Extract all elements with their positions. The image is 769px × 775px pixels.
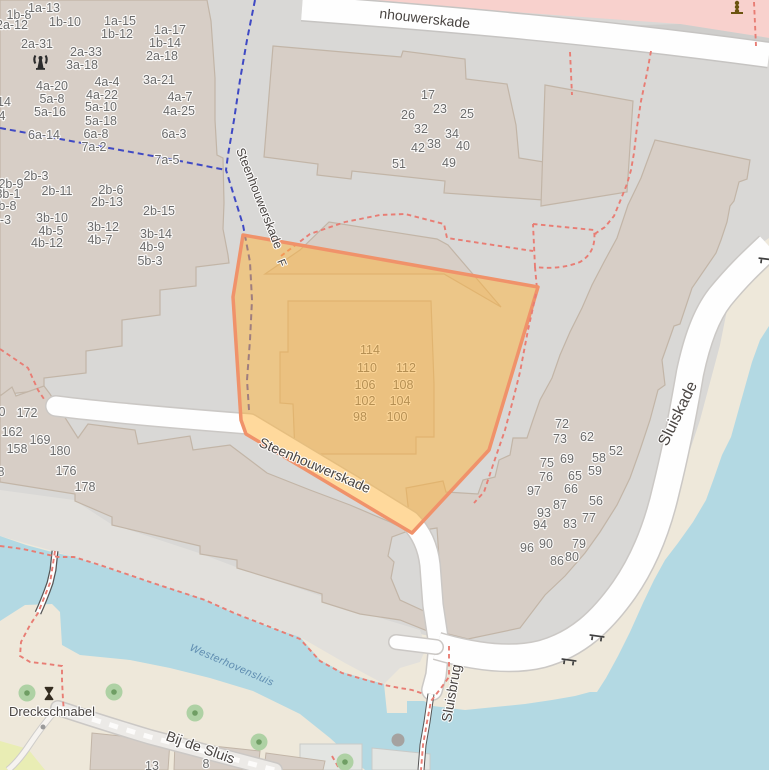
svg-text:3a-21: 3a-21 (143, 73, 175, 87)
svg-text:5b-3: 5b-3 (137, 254, 162, 268)
svg-text:77: 77 (582, 511, 596, 525)
svg-text:80: 80 (565, 550, 579, 564)
svg-text:1a-13: 1a-13 (28, 1, 60, 15)
svg-text:8: 8 (203, 757, 210, 770)
svg-text:14: 14 (0, 95, 11, 109)
svg-text:176: 176 (56, 464, 77, 478)
svg-text:3b-12: 3b-12 (87, 220, 119, 234)
svg-text:25: 25 (460, 107, 474, 121)
svg-text:6a-3: 6a-3 (161, 127, 186, 141)
svg-text:1b-14: 1b-14 (149, 36, 181, 50)
svg-text:94: 94 (533, 518, 547, 532)
svg-text:7a-5: 7a-5 (154, 153, 179, 167)
svg-text:86: 86 (550, 554, 564, 568)
svg-text:2a-31: 2a-31 (21, 37, 53, 51)
svg-text:2b-13: 2b-13 (91, 195, 123, 209)
svg-text:3b-8: 3b-8 (0, 199, 17, 213)
svg-text:38: 38 (427, 137, 441, 151)
svg-text:b-3: b-3 (0, 213, 11, 227)
svg-text:26: 26 (401, 108, 415, 122)
svg-text:172: 172 (17, 406, 38, 420)
svg-text:1b-10: 1b-10 (49, 15, 81, 29)
svg-text:158: 158 (7, 442, 28, 456)
svg-text:1b-12: 1b-12 (101, 27, 133, 41)
svg-text:2b-15: 2b-15 (143, 204, 175, 218)
svg-text:1a-15: 1a-15 (104, 14, 136, 28)
svg-text:59: 59 (588, 464, 602, 478)
svg-text:0: 0 (0, 405, 6, 419)
svg-text:62: 62 (580, 430, 594, 444)
svg-text:4a-7: 4a-7 (167, 90, 192, 104)
svg-text:52: 52 (609, 444, 623, 458)
svg-text:5a-10: 5a-10 (85, 100, 117, 114)
svg-text:4a-25: 4a-25 (163, 104, 195, 118)
svg-text:17: 17 (421, 88, 435, 102)
svg-text:5a-16: 5a-16 (34, 105, 66, 119)
svg-text:2a-18: 2a-18 (146, 49, 178, 63)
svg-text:7a-2: 7a-2 (81, 140, 106, 154)
svg-text:13: 13 (145, 759, 159, 770)
svg-text:72: 72 (555, 417, 569, 431)
svg-text:83: 83 (563, 517, 577, 531)
svg-text:2b-3: 2b-3 (23, 169, 48, 183)
svg-text:66: 66 (564, 482, 578, 496)
svg-text:6a-8: 6a-8 (83, 127, 108, 141)
svg-text:4a-20: 4a-20 (36, 79, 68, 93)
svg-text:180: 180 (50, 444, 71, 458)
svg-text:51: 51 (392, 157, 406, 171)
svg-text:4: 4 (0, 109, 6, 123)
svg-text:40: 40 (456, 139, 470, 153)
svg-text:162: 162 (2, 425, 23, 439)
svg-text:56: 56 (589, 494, 603, 508)
svg-text:76: 76 (539, 470, 553, 484)
svg-text:6a-14: 6a-14 (28, 128, 60, 142)
svg-text:79: 79 (572, 537, 586, 551)
svg-text:69: 69 (560, 452, 574, 466)
svg-text:90: 90 (539, 537, 553, 551)
svg-text:5a-18: 5a-18 (85, 114, 117, 128)
svg-text:8: 8 (0, 465, 5, 479)
svg-text:2a-33: 2a-33 (70, 45, 102, 59)
svg-text:5a-8: 5a-8 (39, 92, 64, 106)
svg-text:73: 73 (553, 432, 567, 446)
svg-text:1a-17: 1a-17 (154, 23, 186, 37)
svg-text:97: 97 (527, 484, 541, 498)
svg-text:87: 87 (553, 498, 567, 512)
svg-text:3a-18: 3a-18 (66, 58, 98, 72)
svg-text:42: 42 (411, 141, 425, 155)
svg-text:4b-12: 4b-12 (31, 236, 63, 250)
svg-text:23: 23 (433, 102, 447, 116)
svg-text:2b-11: 2b-11 (41, 184, 72, 198)
svg-text:4a-4: 4a-4 (94, 75, 119, 89)
svg-text:178: 178 (75, 480, 96, 494)
svg-text:65: 65 (568, 469, 582, 483)
svg-text:4b-9: 4b-9 (139, 240, 164, 254)
svg-text:3b-10: 3b-10 (36, 211, 68, 225)
svg-text:58: 58 (592, 451, 606, 465)
svg-text:49: 49 (442, 156, 456, 170)
svg-text:2a-12: 2a-12 (0, 18, 28, 32)
svg-text:169: 169 (30, 433, 51, 447)
svg-text:3b-14: 3b-14 (140, 227, 172, 241)
svg-text:75: 75 (540, 456, 554, 470)
svg-text:32: 32 (414, 122, 428, 136)
svg-text:96: 96 (520, 541, 534, 555)
svg-text:4b-7: 4b-7 (87, 233, 112, 247)
svg-text:Dreckschnabel: Dreckschnabel (9, 704, 95, 719)
